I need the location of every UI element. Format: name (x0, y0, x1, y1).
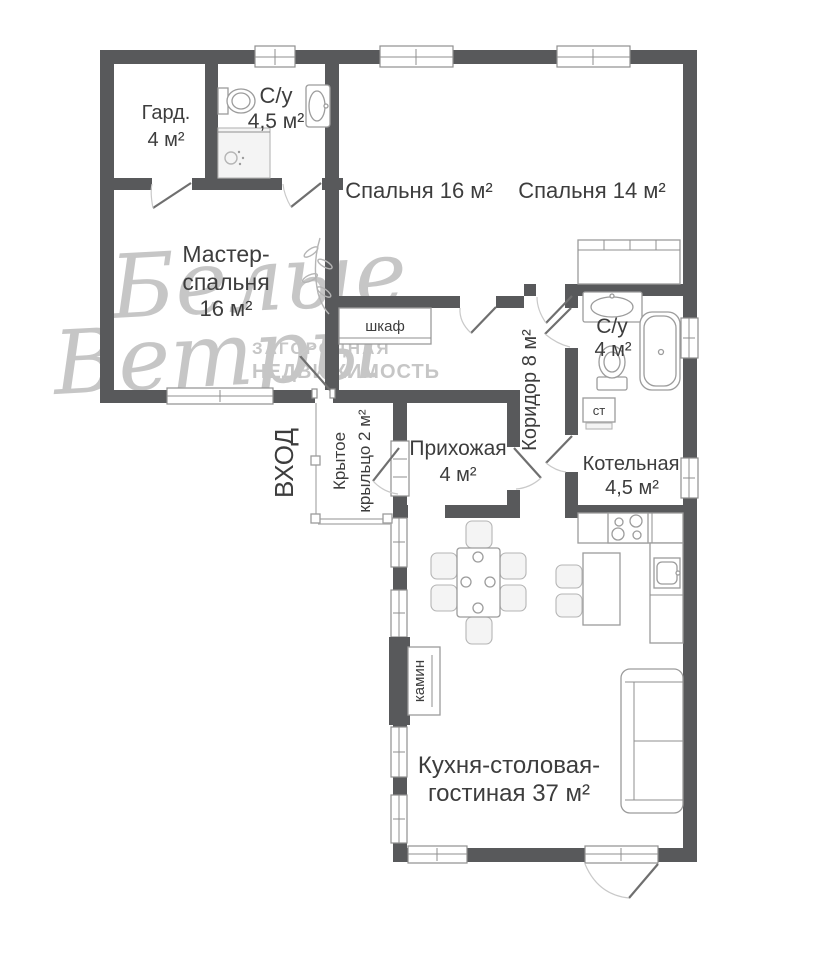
watermark-caption-line2: НЕДВИЖИМОСТЬ (252, 361, 440, 383)
bathtub-icon (640, 312, 680, 390)
label-porch-line1: Крытое (330, 432, 349, 490)
window-bath-top (255, 46, 295, 67)
room-labels: Гард. 4 м² С/у 4,5 м² Спальня 16 м² Спал… (142, 83, 680, 807)
label-wardrobe-area: 4 м² (147, 129, 184, 151)
window-bath-mid (681, 318, 698, 358)
label-bath-top-area: 4,5 м² (248, 110, 304, 133)
window-boiler (681, 458, 698, 498)
door-bedroom16 (460, 307, 496, 333)
label-hall-area: 4 м² (439, 464, 476, 486)
window-living-left-4 (391, 795, 407, 843)
label-bath-top-name: С/у (260, 83, 293, 108)
sink-icon (306, 85, 330, 127)
label-master-area: 16 м² (199, 296, 252, 321)
label-fireplace: камин (411, 660, 428, 702)
label-bedroom14: Спальня 14 м² (518, 178, 666, 203)
label-entrance: ВХОД (269, 428, 299, 498)
label-living-line2: гостиная 37 м² (428, 780, 590, 807)
shower-icon (218, 128, 270, 178)
window-master (167, 388, 273, 404)
label-boiler-name: Котельная (583, 453, 680, 475)
label-corridor: Коридор 8 м² (519, 329, 541, 451)
label-washer: ст (593, 403, 606, 418)
floor-plan: Белые Ветры ЗАГОРОДНАЯ НЕДВИЖИМОСТЬ (0, 0, 821, 953)
label-master-line2: спальня (182, 269, 269, 295)
wardrobe-cabinet (578, 240, 680, 284)
label-wardrobe-name: Гард. (142, 102, 191, 124)
stove-icon (608, 513, 648, 543)
window-bedroom16 (380, 46, 453, 67)
door-boiler (546, 436, 572, 472)
window-bedroom14 (557, 46, 630, 67)
door-bedroom14 (537, 296, 572, 323)
label-bedroom16: Спальня 16 м² (345, 178, 493, 203)
door-wardrobe (151, 183, 191, 208)
island-counter (556, 553, 620, 625)
window-living-left-3 (391, 727, 407, 777)
door-entrance (373, 441, 409, 496)
door-bath-mid (545, 308, 571, 347)
door-terrace (585, 846, 658, 898)
porch-structure (311, 403, 393, 524)
label-living-line1: Кухня-столовая- (418, 752, 600, 779)
kitchen-sink-icon (654, 558, 680, 588)
label-master-line1: Мастер- (182, 241, 269, 267)
window-living-bottom (408, 846, 467, 863)
dining-table (431, 521, 526, 644)
window-living-left-2 (391, 590, 407, 637)
label-hall-name: Прихожая (409, 437, 506, 460)
label-closet: шкаф (365, 318, 405, 335)
label-porch-line2: крыльцо 2 м² (355, 409, 374, 512)
door-bath-top (283, 183, 321, 207)
floor-plan-canvas: Белые Ветры ЗАГОРОДНАЯ НЕДВИЖИМОСТЬ (0, 0, 821, 953)
door-hall-corridor (514, 448, 541, 489)
sofa-icon (621, 669, 683, 813)
label-bath-mid-name: С/у (596, 315, 628, 338)
label-bath-mid-area: 4 м² (594, 339, 631, 361)
label-boiler-area: 4,5 м² (605, 477, 659, 499)
window-living-left-1 (391, 518, 407, 567)
